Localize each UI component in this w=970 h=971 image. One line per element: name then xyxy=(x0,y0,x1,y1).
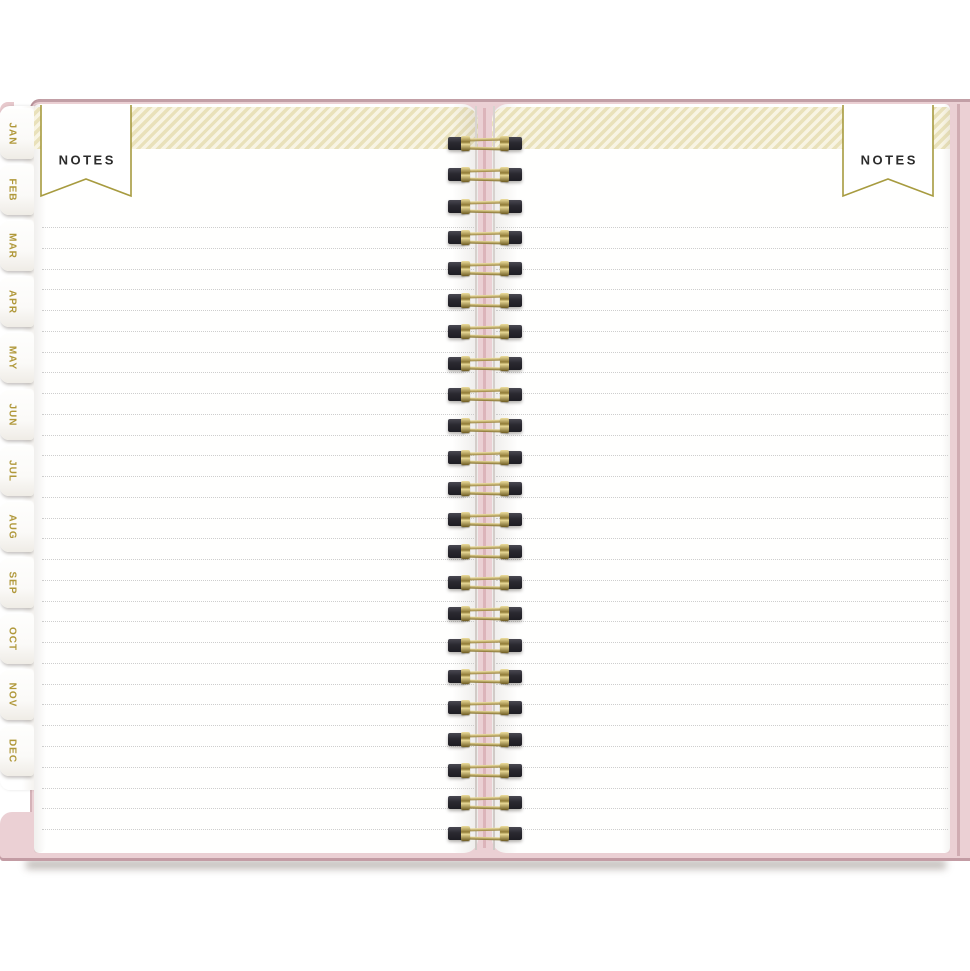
wire-bend-right xyxy=(500,826,509,841)
wire-bend-left xyxy=(461,763,470,778)
wire-bend-right xyxy=(500,136,509,151)
wire-loop xyxy=(448,167,522,182)
notes-banner-right-label: NOTES xyxy=(842,153,934,168)
month-tab: DEC xyxy=(0,726,34,776)
pennant-shape xyxy=(842,105,934,198)
wire-bend-left xyxy=(461,136,470,151)
right-page xyxy=(492,104,950,853)
month-tab-label: JUL xyxy=(7,460,18,482)
month-tab: FEB xyxy=(0,165,34,215)
wire-bend-left xyxy=(461,324,470,339)
wire-loop xyxy=(448,261,522,276)
month-tab: SEP xyxy=(0,558,34,608)
wire-bend-right xyxy=(500,512,509,527)
wire-bend-left xyxy=(461,167,470,182)
wire-bend-left xyxy=(461,261,470,276)
wire-bend-left xyxy=(461,450,470,465)
wire-loop xyxy=(448,700,522,715)
wire-bend-right xyxy=(500,167,509,182)
wire-bend-left xyxy=(461,795,470,810)
wire-bend-left xyxy=(461,669,470,684)
wire-loop xyxy=(448,324,522,339)
notes-banner-left: NOTES xyxy=(40,105,132,198)
month-tab: NOV xyxy=(0,670,34,720)
wire-bend-left xyxy=(461,293,470,308)
month-tab-label: FEB xyxy=(7,179,18,202)
month-tab: JAN xyxy=(0,109,34,159)
month-tab-label: MAR xyxy=(7,233,18,259)
wire-bend-left xyxy=(461,575,470,590)
wire-bend-right xyxy=(500,575,509,590)
month-tab-label: NOV xyxy=(7,683,18,708)
wire-loop xyxy=(448,450,522,465)
month-tab: JUL xyxy=(0,446,34,496)
wire-bend-right xyxy=(500,481,509,496)
month-tab: JUN xyxy=(0,390,34,440)
wire-loop xyxy=(448,638,522,653)
wire-bend-right xyxy=(500,387,509,402)
wire-loop xyxy=(448,356,522,371)
wire-bend-right xyxy=(500,293,509,308)
month-tab-label: APR xyxy=(7,290,18,314)
wire-loop xyxy=(448,575,522,590)
month-tab-label: OCT xyxy=(7,627,18,651)
month-tab: OCT xyxy=(0,614,34,664)
wire-loop xyxy=(448,826,522,841)
notes-banner-left-label: NOTES xyxy=(40,153,132,168)
month-tab-label: JUN xyxy=(7,403,18,426)
wire-bend-right xyxy=(500,606,509,621)
month-tab-label: SEP xyxy=(7,571,18,594)
wire-bend-right xyxy=(500,669,509,684)
wire-loop xyxy=(448,795,522,810)
wire-loop xyxy=(448,606,522,621)
wire-bend-left xyxy=(461,512,470,527)
month-tab-label: DEC xyxy=(7,739,18,763)
wire-loop xyxy=(448,669,522,684)
wire-bend-left xyxy=(461,481,470,496)
wire-bend-right xyxy=(500,638,509,653)
wire-bend-right xyxy=(500,795,509,810)
wire-loop xyxy=(448,230,522,245)
wire-bend-right xyxy=(500,700,509,715)
wire-loop xyxy=(448,544,522,559)
wire-bend-left xyxy=(461,700,470,715)
wire-bend-left xyxy=(461,356,470,371)
cover-right-edge-line xyxy=(957,104,960,856)
wire-bend-right xyxy=(500,356,509,371)
wire-bend-right xyxy=(500,450,509,465)
month-tab: APR xyxy=(0,277,34,327)
wire-bend-left xyxy=(461,732,470,747)
wire-loop xyxy=(448,199,522,214)
wire-bend-left xyxy=(461,230,470,245)
wire-loop xyxy=(448,763,522,778)
wire-loop xyxy=(448,293,522,308)
wire-bend-right xyxy=(500,763,509,778)
wire-bend-left xyxy=(461,606,470,621)
month-tab-label: AUG xyxy=(7,514,18,539)
wire-bend-right xyxy=(500,544,509,559)
month-tab-label: JAN xyxy=(7,122,18,145)
wire-bend-left xyxy=(461,387,470,402)
month-tab: AUG xyxy=(0,502,34,552)
wire-bend-right xyxy=(500,261,509,276)
month-tab: MAY xyxy=(0,333,34,383)
wire-bend-left xyxy=(461,826,470,841)
notebook-photo: NOTES NOTES JAN FEB MAR APR MAY JUN JUL … xyxy=(0,0,970,971)
month-tab: MAR xyxy=(0,221,34,271)
wire-loop xyxy=(448,136,522,151)
left-page xyxy=(34,104,478,853)
wire-bend-left xyxy=(461,544,470,559)
wire-bend-left xyxy=(461,199,470,214)
wire-loop xyxy=(448,512,522,527)
wire-loop xyxy=(448,418,522,433)
notes-banner-right: NOTES xyxy=(842,105,934,198)
wire-loop xyxy=(448,732,522,747)
wire-bend-right xyxy=(500,324,509,339)
wire-bend-right xyxy=(500,230,509,245)
wire-loop xyxy=(448,387,522,402)
wire-loop xyxy=(448,481,522,496)
wire-bend-left xyxy=(461,638,470,653)
wire-bend-right xyxy=(500,418,509,433)
wire-bend-right xyxy=(500,199,509,214)
pennant-shape xyxy=(40,105,132,198)
wire-bend-right xyxy=(500,732,509,747)
month-tab-label: MAY xyxy=(7,346,18,370)
drop-shadow xyxy=(26,860,946,869)
wire-bend-left xyxy=(461,418,470,433)
